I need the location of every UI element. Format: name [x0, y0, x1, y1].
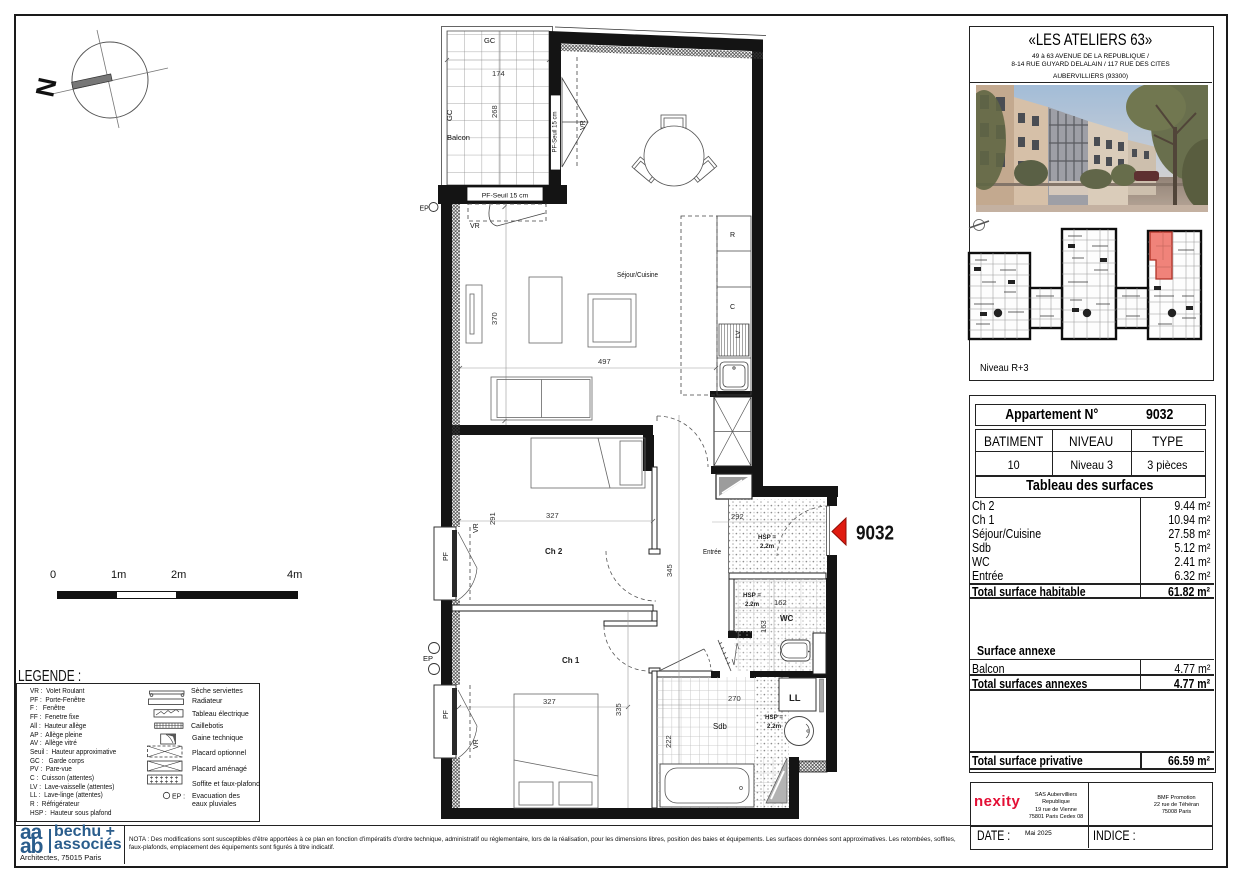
svg-text:VR: VR: [473, 523, 480, 533]
svg-text:291: 291: [488, 512, 497, 525]
svg-text:HSP =: HSP =: [765, 714, 783, 721]
svg-text:GC: GC: [445, 109, 454, 121]
svg-text:GC: GC: [484, 36, 496, 45]
svg-text:EP: EP: [420, 206, 430, 213]
svg-text:PF: PF: [443, 552, 450, 561]
svg-text:9032: 9032: [856, 523, 894, 545]
svg-text:LL: LL: [789, 693, 801, 704]
svg-text:WC: WC: [780, 614, 794, 623]
svg-text:162: 162: [774, 598, 787, 607]
svg-text:Sdb: Sdb: [713, 722, 728, 731]
svg-text:Balcon: Balcon: [447, 133, 470, 142]
svg-text:Ch 2: Ch 2: [545, 547, 563, 556]
svg-text:292: 292: [731, 512, 744, 521]
svg-text:VR: VR: [580, 120, 587, 130]
svg-text:Ch 1: Ch 1: [562, 656, 580, 665]
svg-text:PF: PF: [443, 710, 450, 719]
svg-text:Entrée: Entrée: [703, 549, 721, 556]
svg-text:327: 327: [543, 697, 556, 706]
svg-text:370: 370: [490, 312, 499, 325]
svg-text:2.2m: 2.2m: [760, 543, 775, 550]
svg-text:270: 270: [728, 694, 741, 703]
svg-text:2.2m: 2.2m: [767, 723, 782, 730]
svg-text:2.2m: 2.2m: [745, 601, 760, 608]
svg-text:Séjour/Cuisine: Séjour/Cuisine: [617, 270, 658, 279]
svg-text:EP: EP: [423, 654, 433, 663]
svg-text:222: 222: [664, 735, 673, 748]
svg-text:335: 335: [614, 703, 623, 716]
svg-text:VR: VR: [470, 223, 480, 230]
svg-text:497: 497: [598, 357, 611, 366]
svg-text:HSP =: HSP =: [743, 592, 761, 599]
svg-text:163: 163: [759, 620, 768, 633]
svg-text:345: 345: [665, 564, 674, 577]
svg-text:HSP =: HSP =: [758, 534, 776, 541]
svg-text:LV: LV: [735, 330, 742, 338]
svg-text:PF-Seuil 15 cm: PF-Seuil 15 cm: [482, 193, 529, 200]
svg-text:327: 327: [546, 511, 559, 520]
svg-text:C: C: [730, 304, 735, 311]
svg-text:VR: VR: [473, 739, 480, 749]
svg-text:PF-Seuil 15 cm: PF-Seuil 15 cm: [553, 111, 559, 152]
svg-text:R: R: [730, 232, 735, 239]
svg-text:174: 174: [492, 69, 505, 78]
svg-text:268: 268: [490, 105, 499, 118]
